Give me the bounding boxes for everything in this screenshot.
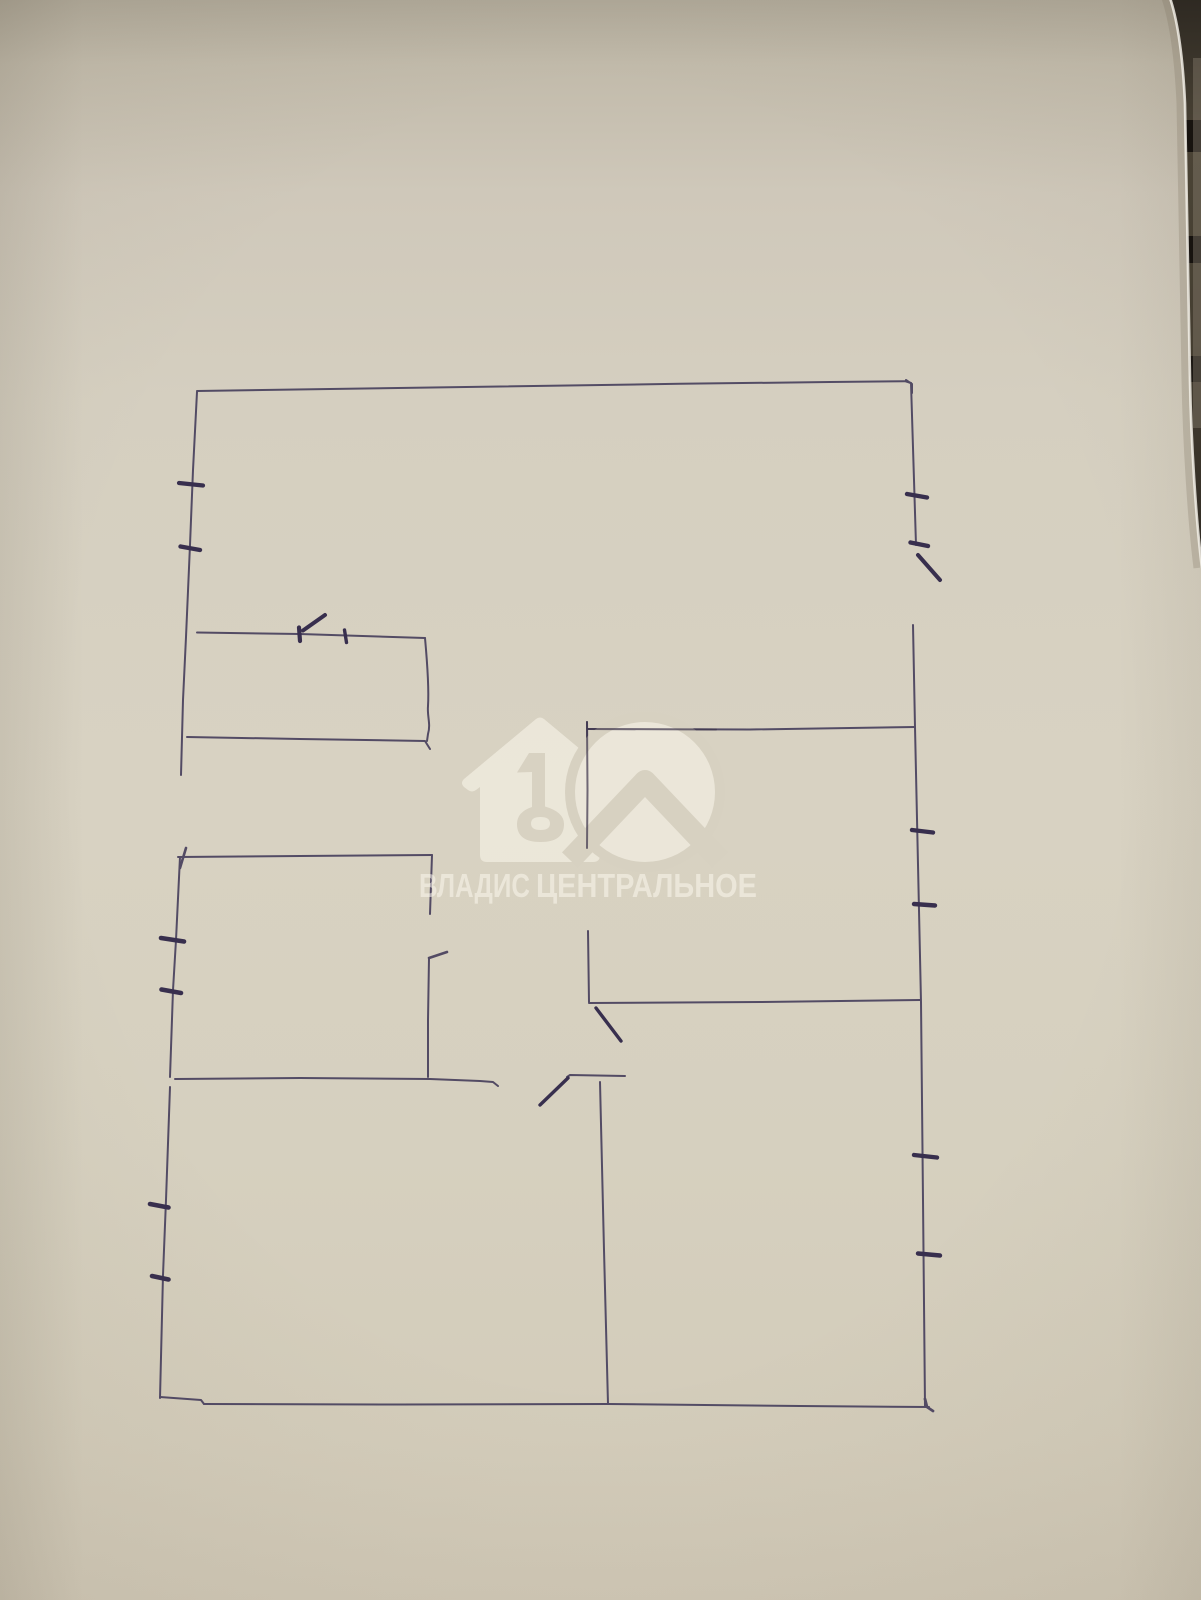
svg-text:ВЛАДИС: ВЛАДИС [419,867,530,904]
svg-text:ЦЕНТРАЛЬНОЕ: ЦЕНТРАЛЬНОЕ [536,867,757,904]
